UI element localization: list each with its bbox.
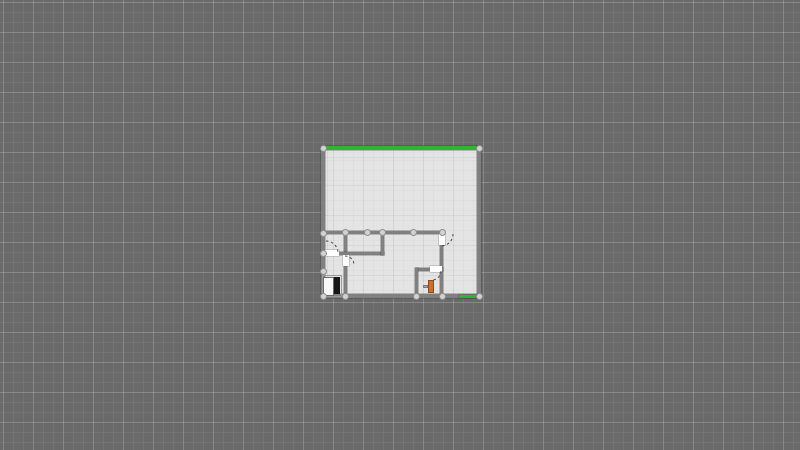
- wall-endpoint-handle[interactable]: [320, 230, 327, 237]
- wall-endpoint-handle[interactable]: [439, 293, 446, 300]
- wall-endpoint-handle[interactable]: [439, 229, 446, 236]
- wall-endpoint-handle[interactable]: [476, 293, 483, 300]
- furniture-cabinet-black-panel[interactable]: [334, 277, 340, 294]
- app-window: [0, 0, 800, 450]
- door-opening-bottom-room[interactable]: [430, 266, 442, 272]
- wall-endpoint-handle[interactable]: [320, 268, 327, 275]
- door-opening-left-room[interactable]: [325, 250, 339, 256]
- wall-endpoint-handle[interactable]: [320, 250, 327, 257]
- furniture-chair-body[interactable]: [428, 280, 434, 293]
- furniture-chair-arm[interactable]: [423, 285, 428, 288]
- door-opening-lower-left[interactable]: [343, 255, 349, 266]
- wall-endpoint-handle[interactable]: [342, 293, 349, 300]
- wall-endpoint-handle[interactable]: [410, 229, 417, 236]
- wall-top-selected[interactable]: [322, 146, 479, 150]
- floor-plan: [0, 0, 800, 450]
- wall-endpoint-handle[interactable]: [476, 145, 483, 152]
- plan-canvas-grid[interactable]: [0, 0, 800, 450]
- wall-endpoint-handle[interactable]: [320, 145, 327, 152]
- wall-endpoint-handle[interactable]: [413, 293, 420, 300]
- wall-right[interactable]: [477, 146, 481, 298]
- wall-endpoint-handle[interactable]: [364, 229, 371, 236]
- door-opening-hall[interactable]: [439, 234, 445, 245]
- wall-endpoint-handle[interactable]: [320, 293, 327, 300]
- wall-endpoint-handle[interactable]: [342, 229, 349, 236]
- wall-endpoint-handle[interactable]: [379, 229, 386, 236]
